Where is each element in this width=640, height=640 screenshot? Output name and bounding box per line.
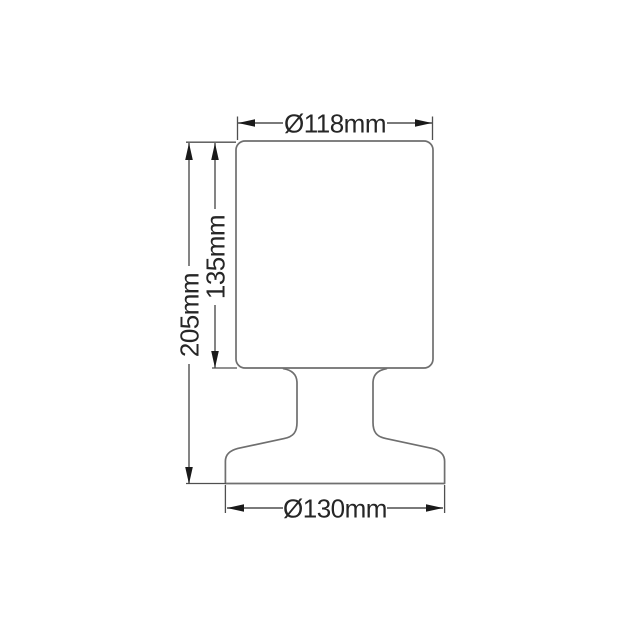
dimension-shade-height: 135mm: [200, 143, 237, 368]
label-base-diameter: Ø130mm: [283, 493, 387, 523]
dimension-total-height: 205mm: [174, 142, 236, 484]
dimension-shade-diameter: Ø118mm: [238, 108, 433, 140]
arrowhead-right: [415, 119, 432, 127]
lamp-dimension-drawing: Ø118mm 205mm 135mm Ø130mm: [0, 0, 640, 640]
lamp-shade-outline: [236, 141, 433, 368]
arrowhead-down: [185, 467, 193, 484]
label-shade-height: 135mm: [200, 215, 230, 299]
lamp-drawing: [225, 141, 444, 484]
label-shade-diameter: Ø118mm: [284, 108, 386, 138]
arrowhead-down: [211, 351, 219, 368]
lamp-base-outline: [225, 369, 444, 484]
arrowhead-up: [185, 143, 193, 160]
arrowhead-up: [211, 143, 219, 160]
arrowhead-left: [227, 504, 244, 512]
arrowhead-left: [238, 119, 255, 127]
arrowhead-right: [426, 504, 443, 512]
dimension-diagram: Ø118mm 205mm 135mm Ø130mm: [0, 0, 640, 640]
dimension-base-diameter: Ø130mm: [225, 485, 444, 523]
